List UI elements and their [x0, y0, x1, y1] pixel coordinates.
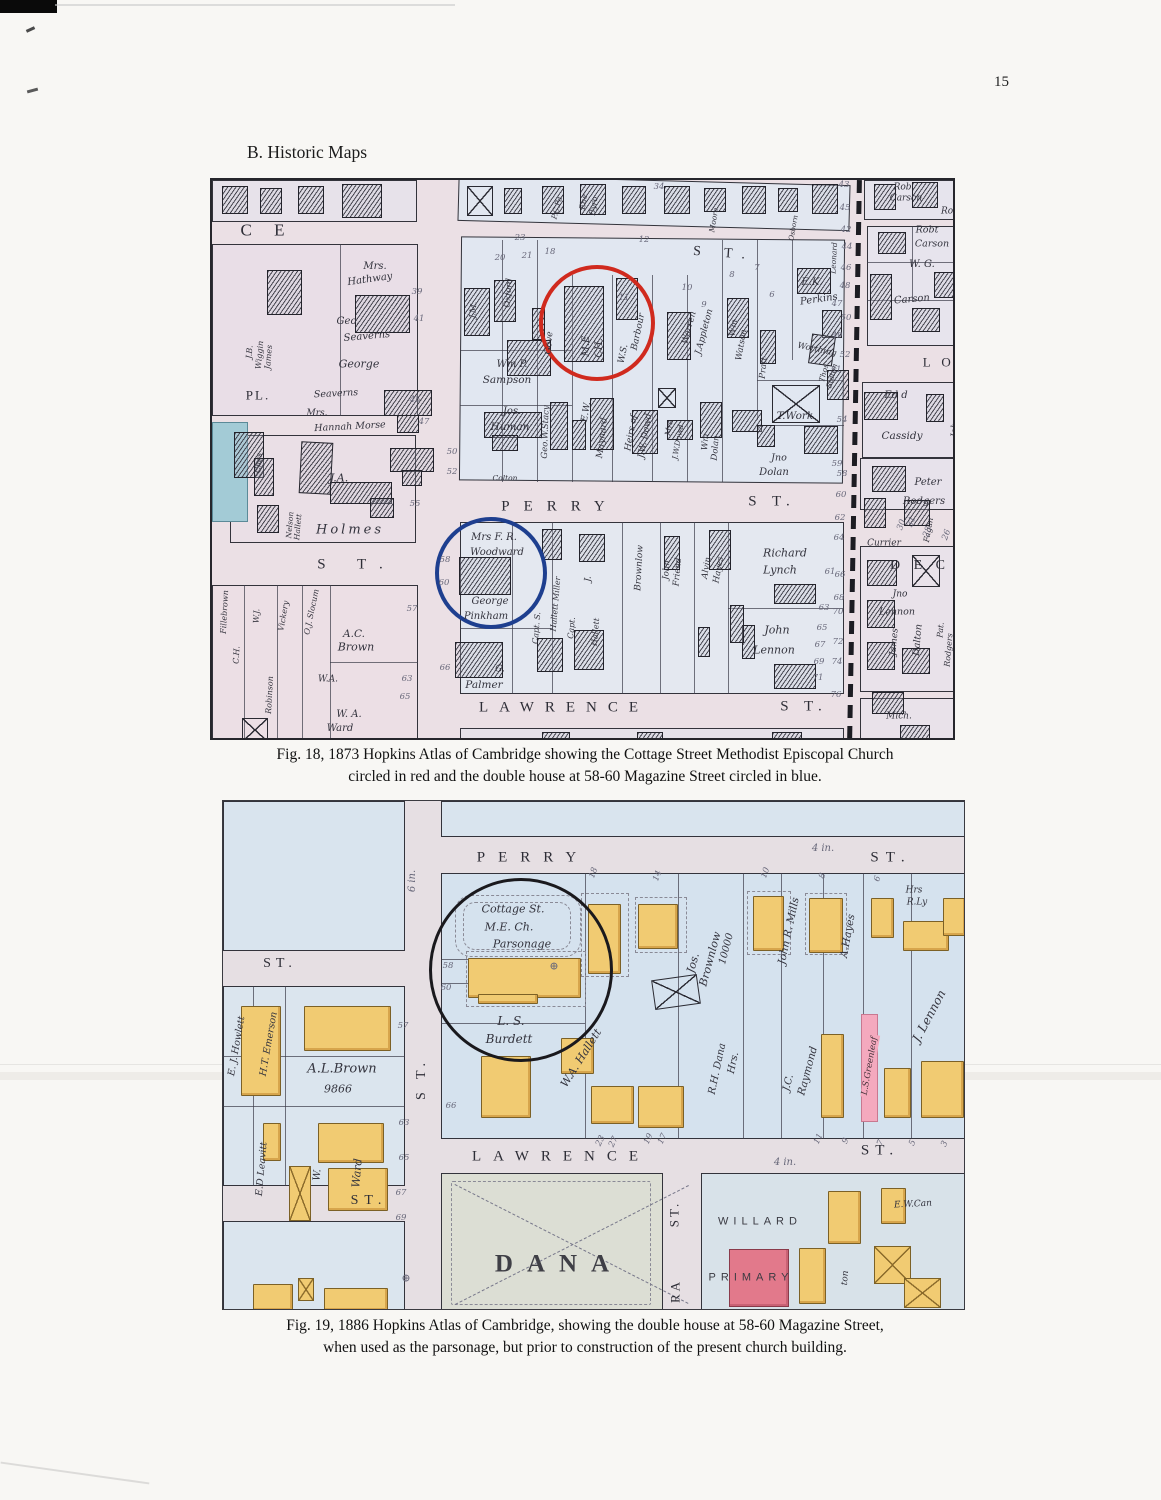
- map-b2: [828, 1191, 861, 1244]
- scan-artifact-corner: [0, 0, 57, 13]
- map-label: Carson: [915, 239, 949, 249]
- map-label: 60: [439, 579, 450, 588]
- map-label: ⊕: [401, 1273, 410, 1284]
- map-label: Colton: [492, 474, 517, 482]
- map-label: 26: [941, 528, 953, 541]
- map-b1: [572, 420, 586, 450]
- map-hl: [223, 1106, 405, 1107]
- figure-19-caption: Fig. 19, 1886 Hopkins Atlas of Cambridge…: [205, 1315, 965, 1358]
- map-label: 43: [839, 181, 850, 190]
- map-b1: [550, 402, 568, 450]
- map-label: 52: [447, 468, 458, 477]
- map-label: 4 in.: [774, 1158, 796, 1168]
- document-page: 15 B. Historic Maps C ES T.PERRYS T.PL.S…: [0, 0, 1161, 1500]
- map-label: J.M.: [469, 301, 479, 319]
- map-label: Wm: [701, 433, 711, 450]
- map-label: 20: [495, 254, 506, 263]
- map-label: Jno: [893, 591, 908, 600]
- map-label: DANA: [495, 1252, 623, 1277]
- map-label: Pratt: [759, 357, 769, 379]
- map-b2: [324, 1288, 388, 1310]
- map-1873-hopkins-atlas: C ES T.PERRYS T.PL.S T.LAWRENCES T.L O P…: [210, 178, 955, 740]
- map-b1: [730, 605, 744, 643]
- map-label: 59: [832, 460, 843, 469]
- map-b1: [664, 186, 690, 214]
- map-label: 67: [815, 641, 826, 650]
- map-b1: [537, 638, 563, 672]
- map-label: 9866: [324, 1084, 352, 1095]
- map-vl: [660, 522, 661, 694]
- map-label: 46: [841, 264, 852, 273]
- map-b1: [542, 529, 562, 560]
- map-label: Peter: [915, 478, 942, 488]
- map-label: ST.: [668, 1201, 681, 1227]
- map-b1: [257, 505, 279, 533]
- map-label: LAWRENCE: [472, 1150, 650, 1165]
- map-label: John: [951, 416, 955, 437]
- map-b1: [579, 534, 605, 562]
- map-label: L O P: [923, 356, 955, 369]
- map-b1: [900, 725, 930, 740]
- map-vl: [622, 522, 623, 694]
- map-label: Rodgers: [903, 497, 945, 507]
- map-label: Seaverns: [314, 388, 359, 400]
- map-b1: [870, 274, 892, 320]
- map-b2: [943, 898, 965, 936]
- map-label: Holmes: [316, 524, 384, 537]
- map-b1: [622, 186, 646, 214]
- map-label: Jos.: [503, 407, 521, 417]
- map-label: W.J.: [253, 609, 262, 624]
- map-label: M.E. Ch.: [485, 922, 534, 933]
- map-label: S T.: [317, 558, 397, 573]
- map-b1: [774, 664, 816, 689]
- map-label: 64: [834, 534, 845, 543]
- map-b2: [318, 1123, 384, 1163]
- map-label: 11: [813, 1132, 825, 1145]
- map-label: Ward: [327, 724, 354, 734]
- map-b2: [304, 1006, 391, 1051]
- map-label: 63: [819, 604, 830, 613]
- map-label: 21: [522, 252, 533, 261]
- map-label: W.A.: [318, 676, 338, 685]
- map-label: W.: [313, 1169, 324, 1182]
- map-label: Mrs.: [363, 262, 386, 272]
- map-label: 66: [835, 571, 846, 580]
- figure-18-caption: Fig. 18, 1873 Hopkins Atlas of Cambridge…: [205, 744, 965, 787]
- map-label: 65: [399, 1154, 410, 1163]
- map-label: ST.: [351, 1194, 388, 1208]
- map-label: 23: [595, 1134, 607, 1147]
- map-b1: [772, 732, 802, 740]
- map-label: 39: [412, 288, 423, 297]
- map-label: Moore: [708, 207, 720, 233]
- map-label: Dolan: [759, 468, 789, 478]
- map-label: J.: [584, 576, 593, 583]
- map-label: Dolan: [711, 435, 722, 461]
- map-label: 19: [643, 1132, 655, 1145]
- map-label: 63: [402, 675, 413, 684]
- map-dash: [451, 1181, 651, 1305]
- map-label: 57: [407, 605, 418, 614]
- map-label: ton: [841, 1270, 851, 1286]
- caption-line: when used as the parsonage, but prior to…: [323, 1339, 847, 1356]
- map-b1: [384, 390, 432, 416]
- map-label: 42: [841, 226, 852, 235]
- map-label: Carson: [890, 195, 922, 204]
- map-b2: [481, 1056, 531, 1118]
- section-heading: B. Historic Maps: [247, 142, 367, 163]
- map-label: PRIMARY: [709, 1273, 794, 1284]
- map-label: Rob.: [894, 184, 915, 193]
- map-label: George: [471, 597, 508, 607]
- map-b1: [267, 270, 302, 315]
- map-label: C E: [241, 222, 294, 239]
- map-label: Brown: [338, 642, 374, 653]
- map-label: A.C.: [343, 629, 365, 640]
- map-bx: [658, 388, 676, 408]
- map-label: 49: [832, 332, 843, 341]
- map-label: 12: [639, 236, 650, 245]
- map-b1: [864, 498, 886, 528]
- map-label: 50: [841, 314, 852, 323]
- map-label: Hannah Morse: [314, 420, 386, 433]
- map-label: 58: [837, 470, 848, 479]
- map-label: D E C: [890, 559, 950, 573]
- map-b1: [355, 295, 410, 333]
- map-label: Cassidy: [881, 431, 922, 442]
- map-b1: [934, 272, 954, 298]
- map-label: 60: [836, 491, 847, 500]
- map-label: 52: [840, 351, 851, 360]
- map-label: Richard: [763, 548, 807, 559]
- map-vl: [302, 585, 303, 740]
- map-label: 58: [440, 556, 451, 565]
- map-vl: [687, 275, 688, 482]
- page-number: 15: [994, 74, 1009, 91]
- map-label: 63: [399, 1119, 410, 1128]
- map-vl: [285, 986, 286, 1186]
- map-blk: [441, 801, 965, 837]
- map-label: Palmer: [465, 680, 502, 691]
- map-label: Wm P.: [497, 360, 528, 370]
- map-b2: [809, 898, 843, 953]
- scan-artifact-mark: [27, 88, 38, 94]
- map-b1: [298, 186, 324, 214]
- map-b2x: [289, 1166, 311, 1221]
- map-b1: [742, 186, 766, 214]
- map-label: 71: [813, 674, 824, 683]
- map-label: E.K.: [801, 278, 822, 288]
- map-label: 34: [654, 183, 665, 192]
- map-label: 74: [832, 658, 843, 667]
- map-b2: [253, 1284, 293, 1310]
- map-label: 50: [447, 448, 458, 457]
- map-label: 17: [657, 1132, 669, 1145]
- map-label: Leonard: [829, 242, 838, 274]
- map-bx: [651, 974, 701, 1010]
- map-label: 6 in.: [408, 870, 418, 892]
- map-label: ST.: [263, 957, 297, 971]
- map-label: G.: [495, 666, 505, 675]
- map-label: 62: [835, 514, 846, 523]
- map-label: 66: [440, 664, 451, 673]
- map-label: 28: [922, 525, 934, 538]
- map-label: M.E: [582, 336, 592, 357]
- map-label: A.L.Brown: [307, 1063, 376, 1076]
- map-label: Lennon: [879, 607, 915, 617]
- map-b1: [390, 448, 434, 472]
- map-b2: [921, 1061, 964, 1118]
- map-b1: [342, 184, 382, 218]
- map-label: C.H.: [233, 646, 242, 664]
- map-label: S T.: [780, 700, 828, 715]
- map-vl: [792, 240, 793, 360]
- map-label: 55: [410, 500, 421, 509]
- map-label: 7: [754, 264, 759, 273]
- map-label: Geo.W.Stacy: [541, 405, 551, 459]
- map-label: 66: [446, 1102, 457, 1111]
- map-b1: [402, 470, 422, 486]
- map-label: 58: [443, 962, 454, 971]
- map-vl: [244, 585, 245, 740]
- map-label: 23: [515, 234, 526, 243]
- map-b2x: [904, 1278, 941, 1308]
- map-label: 47: [419, 418, 430, 427]
- map-label: Woodward: [470, 548, 524, 558]
- map-b1: [397, 415, 419, 433]
- map-label: Ed d: [884, 391, 907, 401]
- map-vl: [743, 873, 744, 1139]
- map-label: Sampson: [483, 375, 532, 386]
- map-1886-hopkins-atlas: PERRY4 in.ST.6 in.ST.S T.ST.LAWRENCE4 in…: [222, 800, 965, 1310]
- map-label: Parsonage: [493, 939, 551, 950]
- map-b1: [912, 308, 940, 332]
- map-label: Currier: [867, 540, 901, 549]
- map-b1: [778, 188, 798, 212]
- map-b1: [698, 627, 710, 657]
- map-label: S T.: [415, 1058, 429, 1100]
- map-label: 69: [396, 1214, 407, 1223]
- map-bx: [242, 718, 268, 740]
- map-label: 44: [842, 243, 853, 252]
- scan-artifact-topline: [55, 4, 455, 6]
- map-label: 60: [441, 984, 452, 993]
- map-label: J.B.: [245, 345, 254, 359]
- map-label: 4 in.: [812, 844, 834, 854]
- map-bx: [467, 186, 493, 216]
- map-vl: [694, 522, 695, 694]
- map-b2x: [298, 1278, 314, 1301]
- map-label: 31: [906, 515, 918, 528]
- map-b1: [492, 435, 518, 451]
- map-label: 68: [834, 594, 845, 603]
- map-vl: [911, 873, 912, 1139]
- map-label: Robt: [916, 225, 939, 235]
- map-label: L. S.: [497, 1015, 524, 1027]
- map-label: WILLARD: [718, 1217, 802, 1228]
- map-b2: [871, 898, 894, 938]
- map-label: Cottage St.: [482, 904, 545, 915]
- map-label: Mrs F. R.: [471, 533, 517, 543]
- map-label: 65: [400, 693, 411, 702]
- map-b1: [542, 732, 570, 740]
- map-label: 8: [729, 271, 734, 280]
- map-label: 18: [545, 248, 556, 257]
- map-b1: [872, 466, 906, 492]
- map-vl: [722, 240, 723, 482]
- caption-line: Fig. 18, 1873 Hopkins Atlas of Cambridge…: [277, 746, 894, 763]
- caption-line: Fig. 19, 1886 Hopkins Atlas of Cambridge…: [286, 1317, 884, 1334]
- map-label: Friend: [673, 557, 684, 586]
- map-label: 70: [833, 608, 844, 617]
- map-label: PERRY: [501, 500, 619, 515]
- map-label: Lennon: [753, 645, 795, 656]
- map-b2: [591, 1086, 634, 1124]
- map-label: 11: [619, 294, 630, 303]
- map-label: 45: [840, 204, 851, 213]
- map-label: 9: [701, 301, 706, 310]
- map-label: 47: [832, 300, 843, 309]
- map-label: 57: [398, 1022, 409, 1031]
- map-label: 48: [840, 282, 851, 291]
- map-label: 69: [814, 658, 825, 667]
- map-b1: [757, 425, 775, 447]
- map-label: S T.: [748, 495, 796, 510]
- map-label: John: [764, 625, 789, 636]
- map-b2: [638, 1086, 684, 1128]
- map-label: Jno: [771, 453, 787, 463]
- map-label: LAWRENCE: [479, 701, 649, 716]
- map-label: John: [662, 560, 672, 580]
- map-b2: [799, 1248, 826, 1304]
- map-label: 3: [940, 1140, 950, 1149]
- scan-artifact-mark: [26, 26, 35, 33]
- map-label: 5: [908, 1139, 918, 1148]
- map-label: 65: [817, 624, 828, 633]
- map-hl: [330, 662, 418, 663]
- map-label: Burdett: [486, 1033, 533, 1045]
- map-label: Mrs.: [307, 410, 328, 419]
- map-label: George: [339, 359, 380, 370]
- map-label: ⊕: [549, 961, 558, 972]
- map-b1: [812, 184, 838, 214]
- map-label: Rob: [941, 208, 955, 217]
- map-b1: [504, 188, 522, 214]
- map-label: Mich.: [886, 713, 912, 722]
- map-label: 27: [608, 1135, 620, 1148]
- map-label: 45: [410, 396, 421, 405]
- map-vl: [277, 585, 278, 740]
- map-label: RA: [669, 1279, 682, 1303]
- map-label: 76: [831, 691, 842, 700]
- map-b2: [638, 904, 678, 949]
- map-label: PL.: [246, 389, 270, 402]
- map-label: W. G.: [909, 260, 935, 270]
- map-b1: [926, 394, 944, 422]
- map-label: Human: [491, 422, 530, 433]
- map-label: PERRY: [477, 851, 590, 866]
- map-label: E.D Leavitt: [255, 1142, 269, 1197]
- map-b1: [299, 441, 334, 495]
- map-label: Ward: [350, 1158, 364, 1188]
- map-b1: [878, 232, 906, 254]
- map-b1: [804, 426, 838, 454]
- map-label: Hallett: [293, 514, 303, 541]
- caption-line: circled in red and the double house at 5…: [348, 768, 821, 785]
- map-label: 10: [682, 284, 693, 293]
- map-label: W. A.: [336, 710, 361, 720]
- map-b1: [370, 498, 394, 518]
- map-label: J.A.: [330, 473, 349, 484]
- map-label: Geo.: [337, 317, 360, 327]
- map-b2: [821, 1034, 844, 1118]
- map-label: 41: [414, 315, 425, 324]
- map-b1: [774, 584, 816, 604]
- map-label: Hrs: [906, 887, 923, 896]
- map-label: R.Ly: [907, 899, 928, 908]
- map-label: 54: [837, 416, 848, 425]
- map-label: 51: [831, 366, 842, 375]
- map-b1: [222, 186, 248, 214]
- map-b1: [260, 188, 282, 214]
- scan-artifact-line: [1, 1462, 150, 1484]
- map-label: Lynch: [763, 565, 797, 576]
- map-blk: [223, 801, 405, 951]
- map-b2: [884, 1068, 911, 1118]
- map-label: 6: [769, 291, 774, 300]
- map-label: T.Work: [777, 411, 814, 422]
- map-label: Pinkham: [464, 612, 508, 622]
- map-b1: [637, 732, 663, 740]
- map-label: 67: [396, 1189, 407, 1198]
- map-label: ST.: [870, 851, 911, 866]
- map-label: CH.: [595, 338, 605, 358]
- map-label: 72: [833, 638, 844, 647]
